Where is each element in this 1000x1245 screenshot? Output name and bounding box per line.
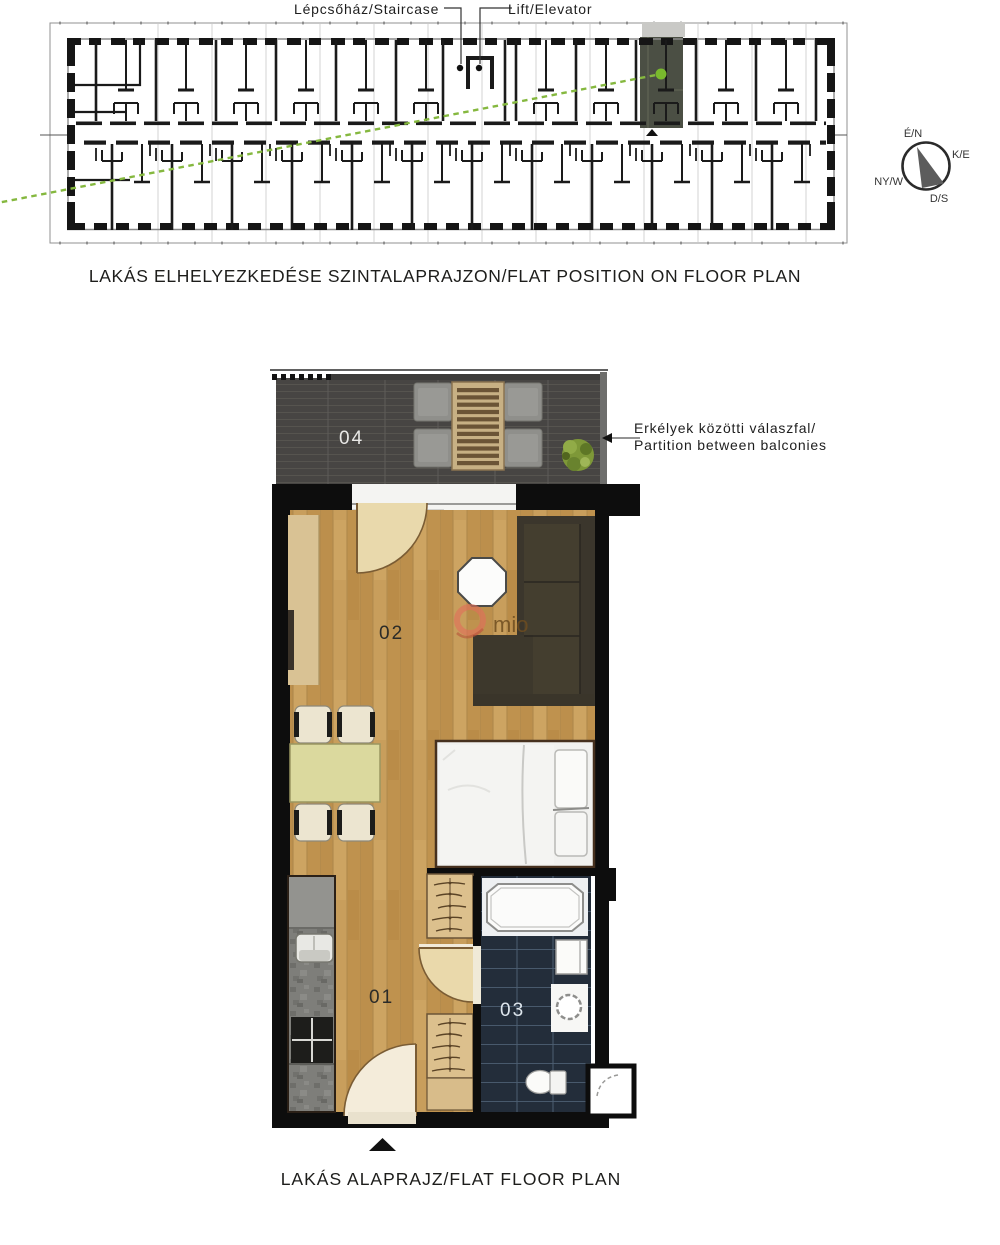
svg-text:D/S: D/S: [930, 193, 948, 205]
svg-text:01: 01: [369, 987, 394, 1008]
svg-text:É/N: É/N: [904, 127, 922, 140]
svg-text:04: 04: [339, 428, 364, 449]
svg-text:NY/W: NY/W: [874, 176, 903, 188]
svg-text:03: 03: [500, 1000, 525, 1021]
svg-text:Erkélyek közötti válaszfal/: Erkélyek közötti válaszfal/: [634, 420, 816, 436]
svg-text:LAKÁS ALAPRAJZ/FLAT FLOOR PLAN: LAKÁS ALAPRAJZ/FLAT FLOOR PLAN: [281, 1169, 622, 1189]
svg-text:Lift/Elevator: Lift/Elevator: [508, 1, 592, 17]
svg-text:LAKÁS ELHELYEZKEDÉSE SZINTALAP: LAKÁS ELHELYEZKEDÉSE SZINTALAPRAJZON/FLA…: [89, 266, 801, 286]
svg-text:mio: mio: [493, 612, 528, 637]
svg-text:Lépcsőház/Staircase: Lépcsőház/Staircase: [294, 1, 439, 17]
svg-text:K/E: K/E: [952, 149, 970, 161]
svg-text:Partition between balconies: Partition between balconies: [634, 437, 827, 453]
svg-text:02: 02: [379, 623, 404, 644]
